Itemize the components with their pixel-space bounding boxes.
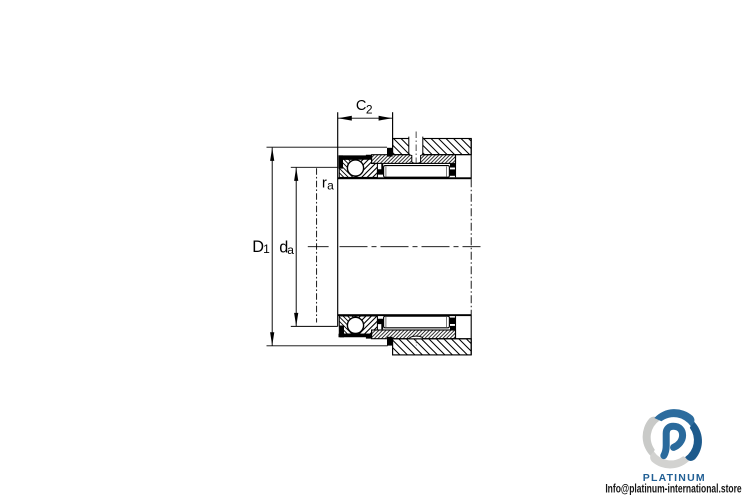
svg-text:PLATINUM: PLATINUM xyxy=(643,472,706,484)
svg-text:1: 1 xyxy=(263,242,270,256)
svg-text:2: 2 xyxy=(366,103,373,117)
svg-text:a: a xyxy=(287,243,294,257)
svg-text:a: a xyxy=(327,178,334,192)
svg-text:C: C xyxy=(356,98,367,114)
svg-text:Info@platinum-international.st: Info@platinum-international.store xyxy=(605,483,742,496)
